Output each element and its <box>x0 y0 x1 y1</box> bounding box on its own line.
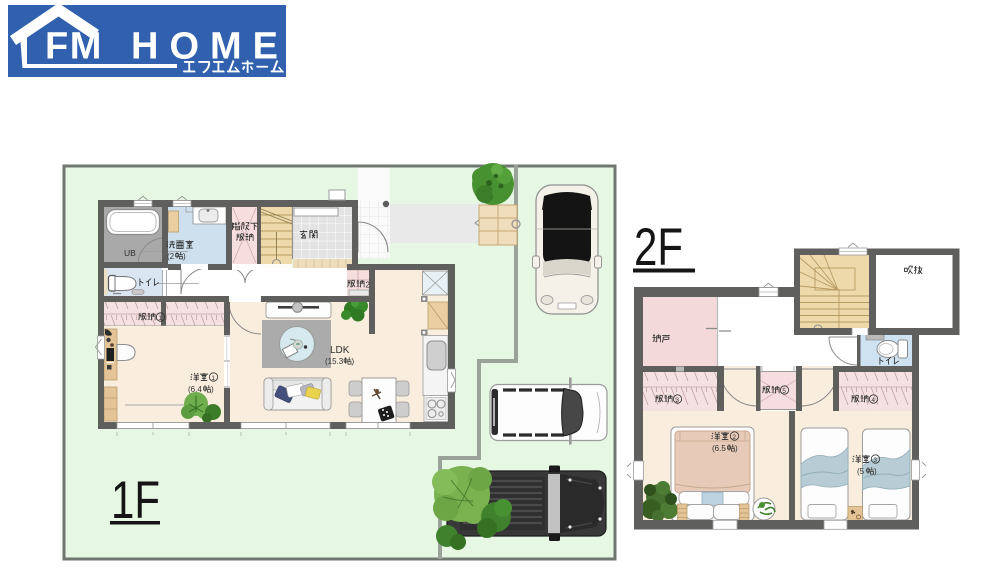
svg-text:UB: UB <box>124 248 136 258</box>
svg-text:1: 1 <box>211 375 215 382</box>
svg-text:(6.4: (6.4 <box>188 385 202 394</box>
svg-text:3: 3 <box>873 457 877 464</box>
svg-text:1: 1 <box>158 315 162 322</box>
svg-text:5: 5 <box>782 388 786 395</box>
svg-text:4: 4 <box>871 397 875 404</box>
svg-text:LDK: LDK <box>330 345 350 356</box>
svg-text:): ) <box>352 357 355 366</box>
svg-text:2: 2 <box>366 281 371 290</box>
svg-text:): ) <box>735 444 738 453</box>
svg-text:3: 3 <box>675 397 679 404</box>
svg-text:): ) <box>211 385 214 394</box>
svg-text:2F: 2F <box>634 218 683 277</box>
svg-text:): ) <box>183 252 186 261</box>
svg-text:HOME: HOME <box>131 26 289 68</box>
svg-text:FM: FM <box>45 26 103 68</box>
svg-text:2: 2 <box>732 434 736 441</box>
svg-text:): ) <box>874 467 877 476</box>
svg-text:(2: (2 <box>167 252 175 261</box>
svg-text:(5: (5 <box>857 467 865 476</box>
svg-text:(15.3: (15.3 <box>325 357 344 366</box>
svg-text:(6.5: (6.5 <box>712 444 726 453</box>
